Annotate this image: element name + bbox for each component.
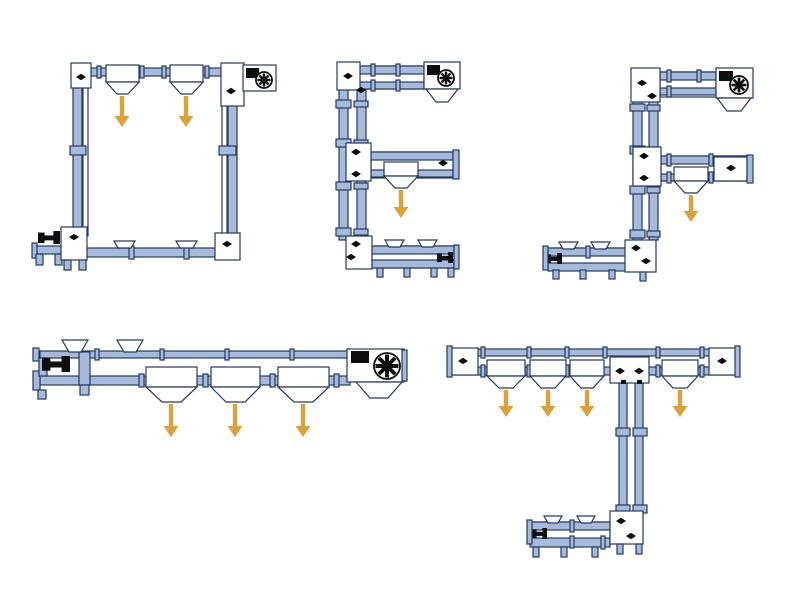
hopper-funnel <box>570 376 604 388</box>
support-foot <box>533 547 539 557</box>
tube-flange <box>371 80 375 91</box>
right-column-tube <box>228 104 237 238</box>
right-column-return-tube <box>222 104 227 238</box>
bottom-arm-tube <box>372 246 454 254</box>
corner-housing <box>221 63 244 106</box>
tube-flange <box>95 349 99 360</box>
hopper-funnel <box>146 387 197 402</box>
drive-motor-icon <box>351 351 369 363</box>
discharge-arrow-icon <box>228 404 243 437</box>
tube-flange <box>481 365 485 377</box>
end-plate <box>453 150 459 179</box>
junction-housing <box>346 236 372 269</box>
tube-flange <box>656 365 660 377</box>
closed-loop-circuit-layout <box>32 63 276 270</box>
tube-flange <box>396 80 400 91</box>
drive-wheel-icon <box>730 76 748 94</box>
tube-flange <box>667 172 671 183</box>
corner-housing <box>610 511 643 544</box>
conveyor-layouts-page <box>0 0 800 600</box>
tube-clamp <box>354 183 368 189</box>
hopper-funnel <box>384 176 418 188</box>
discharge-box <box>106 65 139 82</box>
support-bracket <box>79 352 90 385</box>
end-plate <box>33 348 39 361</box>
left-column-tube <box>73 86 82 236</box>
discharge-box <box>384 162 418 176</box>
end-plate <box>735 346 740 377</box>
tube-flange <box>709 172 713 183</box>
tube-flange <box>371 64 375 76</box>
tube-clamp <box>336 182 351 190</box>
discharge-arrow-icon <box>499 390 514 417</box>
tube-flange <box>97 66 101 78</box>
drop-leg-tube <box>619 383 627 517</box>
top-arm-tube <box>358 66 424 74</box>
support-foot <box>640 272 646 281</box>
tube-flange <box>570 536 574 548</box>
tube-flange <box>667 70 671 82</box>
discharge-box <box>570 360 604 376</box>
drive-wheel-icon <box>256 72 272 88</box>
drive-motor-icon <box>38 231 60 244</box>
tube-clamp <box>647 187 660 193</box>
support-foot <box>431 268 437 277</box>
tube-flange <box>709 154 713 166</box>
tube-clamp <box>647 105 660 111</box>
tube-flange <box>290 349 294 360</box>
drive-motor-icon <box>427 65 440 75</box>
straight-run-layout <box>33 340 407 437</box>
hopper-funnel <box>662 376 698 388</box>
tube-flange <box>700 347 704 358</box>
tube-flange <box>162 66 166 78</box>
tube-clamp <box>354 101 368 107</box>
discharge-box <box>211 367 260 387</box>
f-shape-circuit-layout <box>543 68 753 281</box>
end-plate <box>402 350 407 381</box>
top-run-tube <box>450 349 738 356</box>
inlet-hopper <box>559 242 578 249</box>
discharge-arrow-icon <box>580 390 595 417</box>
support-foot <box>404 268 410 277</box>
tail-tube <box>34 246 63 254</box>
support-foot <box>80 385 89 395</box>
discharge-arrow-icon <box>164 404 179 437</box>
support-foot <box>617 544 623 554</box>
tube-flange <box>603 347 607 358</box>
corner-housing <box>61 227 87 260</box>
support-foot <box>636 544 642 554</box>
tube-flange <box>527 347 531 358</box>
tube-flange <box>697 70 701 82</box>
tube-flange <box>656 347 660 358</box>
discharge-arrow-icon <box>541 390 556 417</box>
support-foot <box>553 270 559 279</box>
end-plate <box>454 245 459 269</box>
inlet-hopper <box>385 240 404 247</box>
discharge-arrow-icon <box>673 390 688 417</box>
end-plate <box>543 246 548 270</box>
conveyor-layout-canvas <box>0 0 800 600</box>
drive-hopper <box>717 98 751 111</box>
support-foot <box>580 270 586 279</box>
tube-flange <box>140 66 144 78</box>
left-column-return-tube <box>83 86 88 236</box>
top-arm-tube <box>358 82 424 89</box>
hopper-funnel <box>278 387 329 402</box>
tube-clamp <box>630 186 645 194</box>
support-foot <box>79 260 86 270</box>
drop-leg-tube <box>635 383 643 517</box>
discharge-arrow-icon <box>394 190 409 218</box>
tube-clamp <box>354 229 368 235</box>
tube-flange <box>570 520 574 532</box>
tube-coupler <box>637 380 642 384</box>
support-foot <box>38 390 46 399</box>
discharge-arrow-icon <box>115 96 130 127</box>
discharge-box <box>530 360 566 376</box>
tube-clamp <box>219 146 236 155</box>
support-foot <box>592 547 598 557</box>
discharge-arrow-icon <box>684 195 699 222</box>
drive-wheel-icon <box>438 70 454 86</box>
tee-drop-circuit-layout <box>447 346 740 557</box>
end-plate <box>747 155 753 183</box>
tube-flange <box>565 347 569 358</box>
tube-clamp <box>616 428 630 436</box>
middle-arm-tube <box>371 152 453 160</box>
tube-clamp <box>633 428 647 436</box>
tube-flange <box>160 349 164 360</box>
discharge-box <box>278 367 329 387</box>
e-shape-circuit-layout <box>336 62 460 277</box>
tube-clamp <box>336 228 351 236</box>
inlet-funnel <box>62 340 88 352</box>
tube-flange <box>270 374 275 387</box>
corner-housing <box>631 68 660 102</box>
inlet-hopper <box>591 242 610 249</box>
inlet-hopper <box>418 240 437 247</box>
drive-wheel-icon <box>374 353 400 379</box>
inlet-hopper <box>114 241 135 248</box>
support-foot <box>448 268 454 277</box>
tube-flange <box>601 536 605 549</box>
hopper-funnel <box>487 376 525 388</box>
tube-flange <box>225 349 229 360</box>
tube-coupler <box>621 380 626 384</box>
hopper-funnel <box>674 181 708 193</box>
tube-clamp <box>647 231 660 237</box>
inlet-hopper <box>176 241 197 248</box>
tube-flange <box>667 86 671 97</box>
discharge-box <box>487 360 525 376</box>
tube-clamp <box>630 104 645 111</box>
support-foot <box>377 268 383 277</box>
hopper-funnel <box>106 82 139 94</box>
discharge-box <box>662 360 698 376</box>
support-foot <box>64 260 71 270</box>
tube-clamp <box>336 100 351 108</box>
end-plate <box>447 346 452 377</box>
corner-housing <box>625 240 656 272</box>
tube-clamp <box>630 230 645 238</box>
discharge-box <box>674 167 708 181</box>
tube-flange <box>667 154 671 166</box>
tube-flange <box>203 374 208 387</box>
hopper-funnel <box>211 387 260 402</box>
discharge-arrow-icon <box>296 404 311 437</box>
hopper-funnel <box>530 376 566 388</box>
junction-housing <box>633 147 661 186</box>
junction-housing <box>610 357 649 383</box>
tube-flange <box>481 347 485 358</box>
tube-flange <box>334 374 339 387</box>
support-foot <box>36 254 43 265</box>
tube-clamp <box>70 146 86 155</box>
drive-hopper <box>426 89 458 102</box>
tube-flange <box>700 365 704 377</box>
support-foot <box>561 547 567 557</box>
support-foot <box>609 270 615 279</box>
hopper-funnel <box>170 82 203 94</box>
drive-hopper <box>356 382 402 398</box>
tube-flange <box>586 246 590 258</box>
discharge-box <box>170 65 203 82</box>
tube-flange <box>396 64 400 76</box>
discharge-box <box>146 367 197 387</box>
inlet-funnel <box>117 340 143 352</box>
tube-flange <box>205 66 209 78</box>
end-plate <box>527 520 532 544</box>
tube-flange <box>139 374 144 387</box>
discharge-arrow-icon <box>179 96 194 127</box>
bottom-run-tube <box>86 248 217 257</box>
